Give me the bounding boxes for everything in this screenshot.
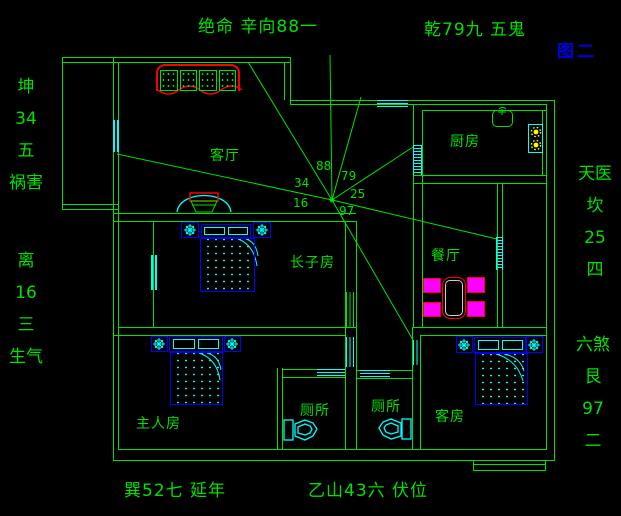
wall-segment bbox=[62, 204, 118, 205]
wall-segment bbox=[113, 57, 114, 461]
bed-headboard bbox=[169, 336, 223, 352]
trigram-label: 坤 bbox=[1, 76, 51, 108]
wall-segment bbox=[290, 104, 546, 105]
pillow bbox=[198, 339, 220, 349]
floorplan-canvas: 绝命 辛向88一 乾79九 五鬼 图二 巽52七 延年 乙山43六 伏位 坤 3… bbox=[0, 0, 621, 516]
wall-segment bbox=[290, 57, 291, 104]
compass-number-88: 88 bbox=[316, 159, 331, 173]
room-label-master: 主人房 bbox=[136, 413, 181, 433]
house-center-point bbox=[330, 198, 334, 202]
wall-segment bbox=[420, 335, 421, 449]
pillow bbox=[173, 339, 195, 349]
pillow bbox=[502, 340, 523, 350]
bed-headboard bbox=[474, 337, 526, 353]
trigram-label: 坎 bbox=[570, 195, 620, 227]
number-label: 三 bbox=[1, 314, 51, 346]
number-label: 16 bbox=[1, 282, 51, 314]
planter-cell bbox=[219, 70, 237, 91]
wall-segment bbox=[546, 104, 547, 450]
label-column-north: 天医 坎 25 四 bbox=[570, 163, 620, 291]
wall-segment bbox=[113, 213, 356, 214]
wall-segment bbox=[413, 104, 414, 327]
door-hatch bbox=[346, 292, 356, 327]
room-label-toilet-right: 厕所 bbox=[371, 396, 401, 416]
wall-segment bbox=[282, 368, 283, 449]
wall-segment bbox=[356, 221, 357, 449]
nightstand bbox=[181, 222, 199, 238]
room-label-toilet-left: 厕所 bbox=[300, 400, 330, 420]
dining-chair bbox=[423, 278, 441, 293]
window bbox=[360, 370, 390, 378]
label-column-south: 离 16 三 生气 bbox=[1, 250, 51, 378]
wall-segment bbox=[413, 327, 546, 328]
wall-segment bbox=[413, 175, 546, 176]
window bbox=[151, 255, 157, 290]
window bbox=[317, 369, 345, 377]
window bbox=[413, 145, 422, 175]
wall-segment bbox=[554, 100, 555, 461]
bed-headboard bbox=[201, 224, 251, 238]
bed-mattress bbox=[200, 238, 255, 292]
annotation-bottom-left: 巽52七 延年 bbox=[124, 476, 226, 501]
label-column-southwest: 坤 34 五 祸害 bbox=[1, 76, 51, 204]
trigram-label: 离 bbox=[1, 250, 51, 282]
compass-number-97: 97 bbox=[339, 204, 354, 218]
wall-segment bbox=[413, 183, 546, 184]
wall-segment bbox=[422, 110, 423, 327]
number-label: 25 bbox=[570, 227, 620, 259]
wall-segment bbox=[118, 327, 356, 328]
porch-step bbox=[473, 470, 546, 471]
compass-number-79: 79 bbox=[341, 169, 356, 183]
window bbox=[496, 237, 503, 270]
number-label: 五 bbox=[1, 140, 51, 172]
bed-mattress bbox=[170, 352, 223, 405]
wall-segment bbox=[62, 57, 290, 58]
nightstand bbox=[253, 222, 271, 238]
annotation-top: 绝命 辛向88一 bbox=[198, 12, 318, 37]
wall-segment bbox=[290, 100, 554, 101]
compass-number-16: 16 bbox=[293, 196, 308, 210]
compass-number-34: 34 bbox=[294, 176, 309, 190]
kitchen-sink bbox=[492, 110, 513, 127]
nightstand bbox=[526, 336, 543, 353]
room-label-dining: 餐厅 bbox=[431, 245, 461, 265]
flower-box-window bbox=[156, 64, 240, 91]
number-label: 97 bbox=[568, 398, 618, 430]
dining-chair bbox=[467, 301, 485, 317]
porch-step bbox=[545, 461, 546, 471]
number-label: 四 bbox=[570, 259, 620, 291]
window bbox=[346, 337, 356, 367]
toilet-icon bbox=[284, 420, 317, 440]
star-label: 六煞 bbox=[568, 334, 618, 366]
porch-step bbox=[473, 461, 474, 471]
dining-table bbox=[442, 277, 466, 319]
plant-stand bbox=[177, 193, 231, 212]
wall-segment bbox=[113, 460, 554, 461]
wall-segment bbox=[284, 62, 285, 100]
planter-cell bbox=[160, 70, 178, 91]
nightstand bbox=[224, 336, 241, 352]
nightstand bbox=[456, 336, 473, 353]
annotation-top-right: 乾79九 五鬼 bbox=[424, 15, 526, 40]
wall-segment bbox=[356, 378, 412, 379]
number-label: 34 bbox=[1, 108, 51, 140]
annotation-bottom-center: 乙山43六 伏位 bbox=[308, 476, 428, 501]
wall-segment bbox=[118, 449, 546, 450]
label-column-northeast: 六煞 艮 97 二 bbox=[568, 334, 618, 462]
wall-segment bbox=[277, 368, 278, 449]
window bbox=[377, 100, 408, 108]
star-label: 生气 bbox=[1, 346, 51, 378]
wall-segment bbox=[113, 221, 356, 222]
porch-step bbox=[473, 464, 546, 465]
star-label: 天医 bbox=[570, 163, 620, 195]
wall-segment bbox=[62, 209, 118, 210]
wall-segment bbox=[345, 221, 346, 449]
window bbox=[113, 120, 119, 152]
wall-segment bbox=[62, 62, 290, 63]
bed-mattress bbox=[475, 353, 528, 405]
stove bbox=[528, 124, 543, 153]
pillow bbox=[204, 227, 224, 236]
room-label-kitchen: 厨房 bbox=[450, 131, 480, 151]
planter-cell bbox=[180, 70, 198, 91]
dining-chair bbox=[423, 302, 441, 317]
wall-segment bbox=[282, 377, 345, 378]
wall-segment bbox=[422, 110, 546, 111]
trigram-label: 艮 bbox=[568, 366, 618, 398]
star-label: 祸害 bbox=[1, 172, 51, 204]
room-label-guest: 客房 bbox=[435, 406, 465, 426]
toilet-icon bbox=[379, 419, 411, 439]
wall-segment bbox=[62, 57, 63, 210]
number-label: 二 bbox=[568, 430, 618, 462]
room-label-living: 客厅 bbox=[210, 145, 240, 165]
window bbox=[413, 340, 420, 365]
pillow bbox=[478, 340, 499, 350]
dining-chair bbox=[467, 277, 485, 293]
figure-caption: 图二 bbox=[557, 37, 597, 62]
nightstand bbox=[151, 336, 168, 352]
planter-cell bbox=[199, 70, 217, 91]
pillow bbox=[228, 227, 248, 236]
compass-number-25: 25 bbox=[350, 187, 365, 201]
room-label-eldest-son: 长子房 bbox=[290, 252, 335, 272]
